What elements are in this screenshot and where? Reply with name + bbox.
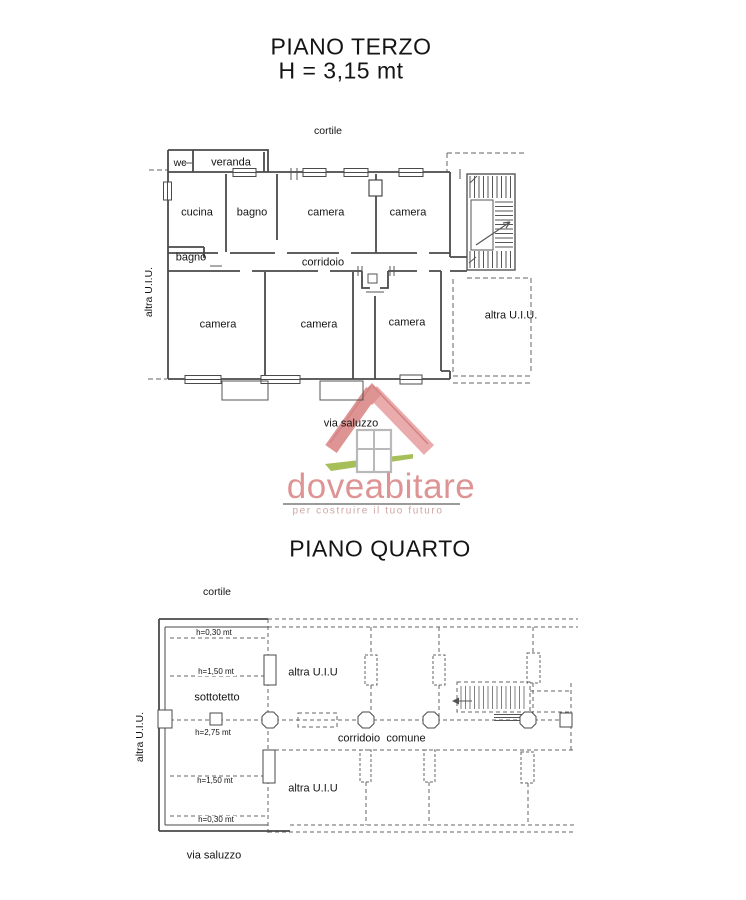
h150-top-label: h=1,50 mt — [196, 668, 236, 676]
doveabitare-brand: doveabitare — [287, 467, 475, 507]
room-cucina: cucina — [181, 208, 213, 219]
piano-quarto-stair-hatch — [452, 686, 524, 721]
altra-uiu-left-terzo: altra U.I.U. — [144, 267, 155, 317]
piano-terzo-height-note: H = 3,15 mt — [278, 60, 403, 83]
piano-quarto-chimneys-dashed — [360, 653, 540, 783]
piano-terzo-windows — [164, 169, 424, 385]
floorplan-drawing — [0, 0, 746, 900]
h275-label: h=2,75 mt — [193, 729, 233, 737]
room-camera-bottom-right: camera — [389, 318, 426, 329]
altra-uiu-top-quarto: altra U.I.U — [288, 668, 338, 679]
corridoio-comune-label-1: corridoio — [338, 734, 380, 745]
room-camera-bottom-center: camera — [301, 320, 338, 331]
room-sottotetto: sottotetto — [194, 693, 239, 704]
piano-quarto-title: PIANO QUARTO — [289, 538, 471, 561]
h150-bottom-label: h=1,50 mt — [195, 777, 235, 785]
piano-quarto-dashed — [170, 619, 578, 833]
corridoio-comune-label-2: comune — [386, 734, 425, 745]
altra-uiu-bottom-quarto: altra U.I.U — [288, 784, 338, 795]
piano-terzo-staircase — [467, 174, 515, 270]
room-corridoio: corridoio — [302, 258, 344, 269]
altra-uiu-right-terzo: altra U.I.U. — [485, 311, 538, 322]
room-camera-top-center: camera — [308, 208, 345, 219]
floorplan-page: PIANO TERZO H = 3,15 mt cortile wc veran… — [0, 0, 746, 900]
altra-uiu-left-quarto: altra U.I.U. — [135, 712, 146, 762]
room-bagno-left: bagno — [176, 253, 207, 264]
via-saluzzo-quarto: via saluzzo — [187, 851, 241, 862]
cortile-label-terzo: cortile — [314, 126, 342, 137]
room-camera-bottom-left: camera — [200, 320, 237, 331]
piano-terzo-title: PIANO TERZO — [271, 36, 432, 59]
room-camera-top-right: camera — [390, 208, 427, 219]
brand-divider — [283, 503, 460, 505]
room-veranda: veranda — [211, 158, 251, 169]
room-bagno-top: bagno — [237, 208, 268, 219]
room-wc: wc — [174, 158, 187, 169]
h030-bottom-label: h=0,30 mt — [196, 816, 236, 824]
h030-top-label: h=0,30 mt — [194, 629, 234, 637]
via-saluzzo-terzo: via saluzzo — [324, 419, 378, 430]
cortile-label-quarto: cortile — [203, 587, 231, 598]
piano-terzo-details — [182, 163, 460, 292]
brand-tagline: per costruire il tuo futuro — [292, 506, 443, 517]
